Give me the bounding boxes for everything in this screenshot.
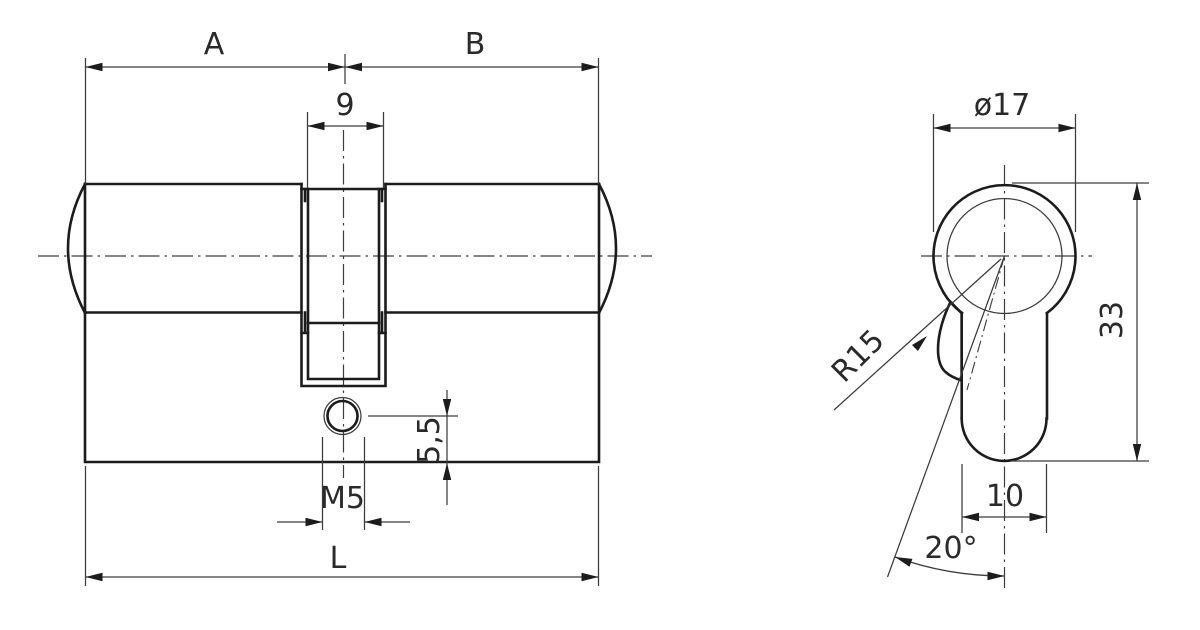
fixing-screw-hole	[324, 398, 361, 435]
cam-nose	[938, 302, 962, 381]
dim-cam-angle: 20°	[888, 256, 1005, 580]
dim-profile-height: 33	[1012, 183, 1149, 461]
dim-cam-width-label: 9	[335, 88, 354, 123]
dim-cam-radius-label: R15	[825, 323, 891, 389]
cam-axis-line	[967, 256, 1005, 390]
dim-thread-label: M5	[320, 481, 365, 516]
dim-profile-height-label: 33	[1095, 301, 1130, 339]
dim-cam-radius: R15	[825, 259, 1001, 410]
dim-a-label: A	[204, 27, 225, 62]
left-end-arc	[68, 184, 85, 313]
thread-circle	[324, 398, 361, 435]
dim-total-length-label: L	[330, 541, 347, 576]
dim-plug-diameter-label: ø17	[974, 88, 1031, 123]
drawing-canvas: A B 9 5,5 M5	[0, 0, 1200, 630]
dim-body-width-label: 10	[986, 479, 1024, 514]
hole-circle	[328, 401, 358, 431]
front-view: A B 9 5,5 M5	[38, 27, 652, 586]
dim-screw-offset-label: 5,5	[412, 416, 447, 464]
dim-cam-width: 9	[308, 88, 384, 188]
cylinder-lock-technical-drawing: A B 9 5,5 M5	[0, 0, 1200, 630]
right-end-arc	[599, 184, 616, 313]
dim-b-label: B	[465, 27, 486, 62]
dim-cam-angle-label: 20°	[924, 531, 977, 566]
dim-screw-offset: 5,5	[368, 390, 458, 505]
profile-view: ø17 33 R15 10	[825, 88, 1149, 592]
